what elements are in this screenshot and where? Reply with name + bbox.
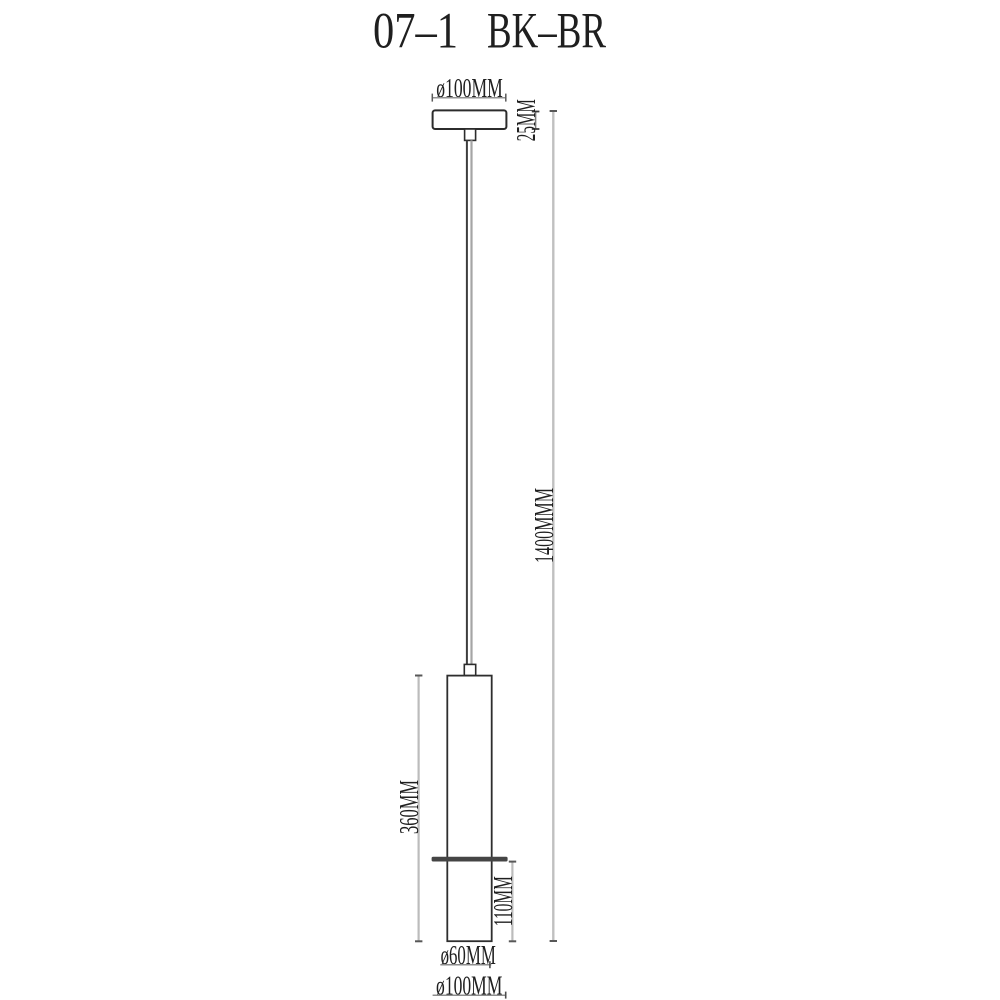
svg-text:25MM: 25MM (511, 99, 541, 141)
svg-text:BK–BR: BK–BR (487, 4, 606, 60)
svg-text:1400MMM: 1400MMM (529, 488, 559, 563)
svg-text:110MM: 110MM (488, 876, 518, 926)
svg-text:360MM: 360MM (394, 780, 424, 834)
svg-text:ø100MM: ø100MM (436, 73, 503, 103)
svg-text:07–1: 07–1 (373, 4, 458, 60)
